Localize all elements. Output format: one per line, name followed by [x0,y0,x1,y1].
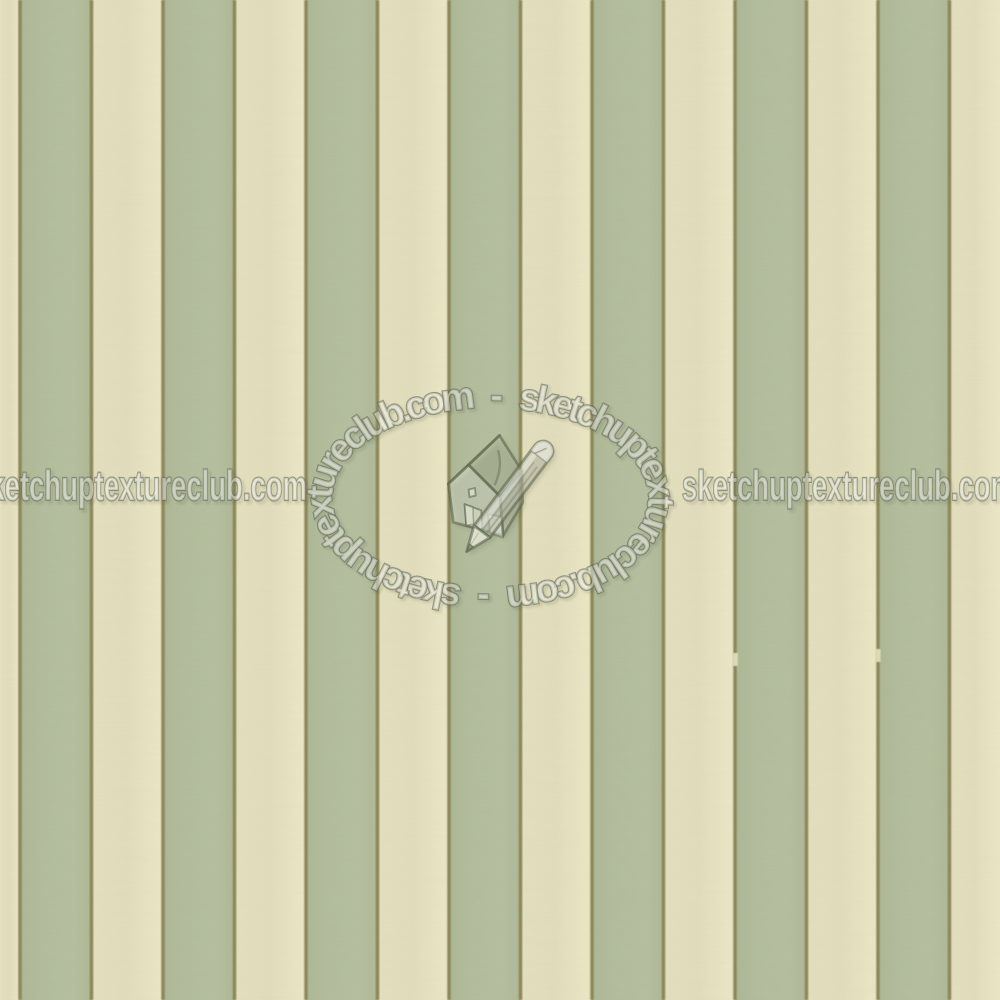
svg-text:sketchuptextureclub.com: sketchuptextureclub.com [0,462,307,509]
svg-text:sketchuptextureclub.com: sketchuptextureclub.com [682,462,1000,509]
